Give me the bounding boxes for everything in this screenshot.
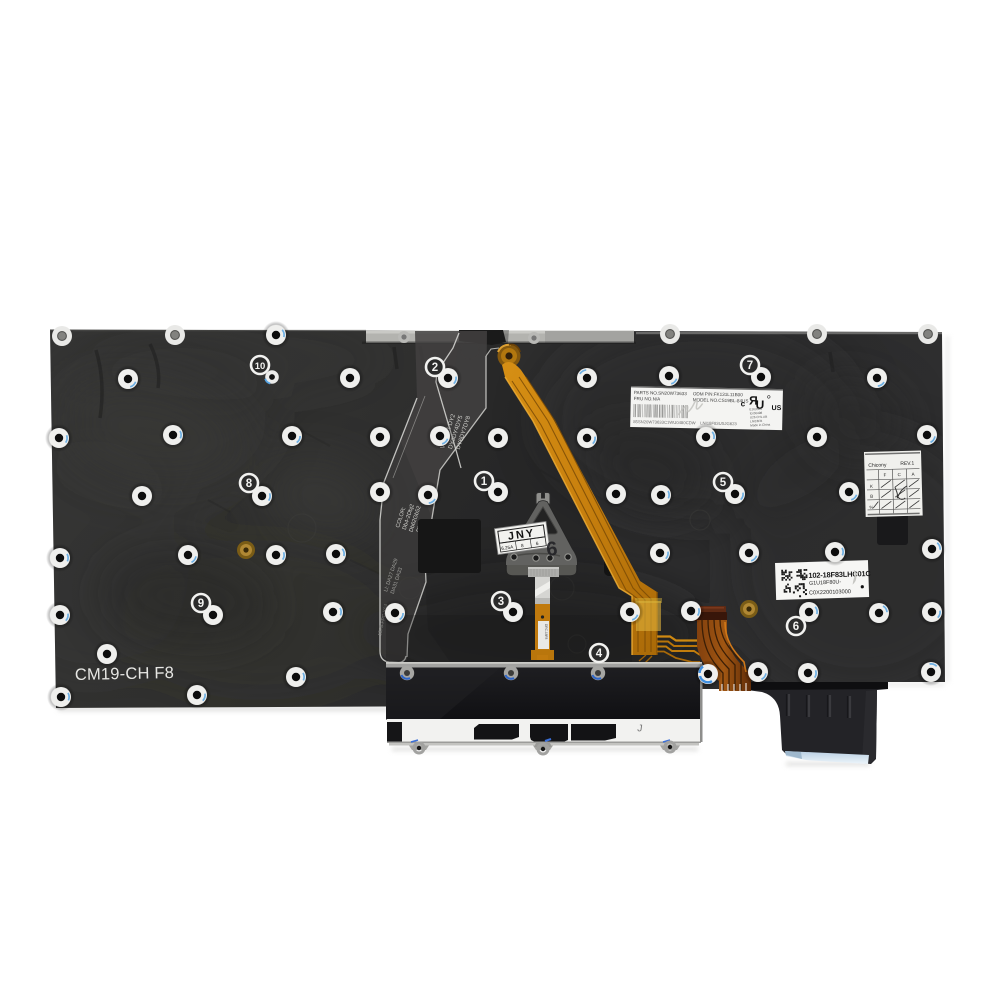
svg-text:DRC-18F8: DRC-18F8	[544, 624, 548, 639]
svg-text:US: US	[771, 405, 781, 412]
svg-text:6: 6	[545, 538, 558, 561]
svg-text:Chicony: Chicony	[868, 462, 887, 468]
svg-text:3: 3	[498, 596, 504, 608]
svg-text:A: A	[912, 472, 915, 477]
svg-text:7: 7	[747, 360, 753, 372]
svg-text:ODM P/N:FK131L11B00: ODM P/N:FK131L11B00	[693, 391, 743, 397]
svg-text:1: 1	[481, 476, 488, 488]
svg-text:REV.1: REV.1	[900, 461, 914, 467]
svg-text:8: 8	[246, 478, 253, 490]
svg-text:c: c	[741, 399, 746, 408]
svg-text:%: %	[869, 505, 873, 510]
svg-text:FRU NO.N/A: FRU NO.N/A	[634, 396, 662, 402]
svg-text:2: 2	[432, 362, 438, 374]
svg-text:K: K	[870, 484, 873, 489]
svg-text:5: 5	[720, 477, 727, 489]
svg-text:10: 10	[255, 361, 266, 372]
svg-text:CM19-CH F8: CM19-CH F8	[75, 664, 175, 684]
svg-text:F: F	[884, 472, 887, 477]
svg-text:4: 4	[596, 648, 603, 660]
svg-text:9: 9	[198, 598, 204, 610]
svg-text:6: 6	[793, 621, 799, 633]
svg-text:B: B	[870, 494, 873, 499]
